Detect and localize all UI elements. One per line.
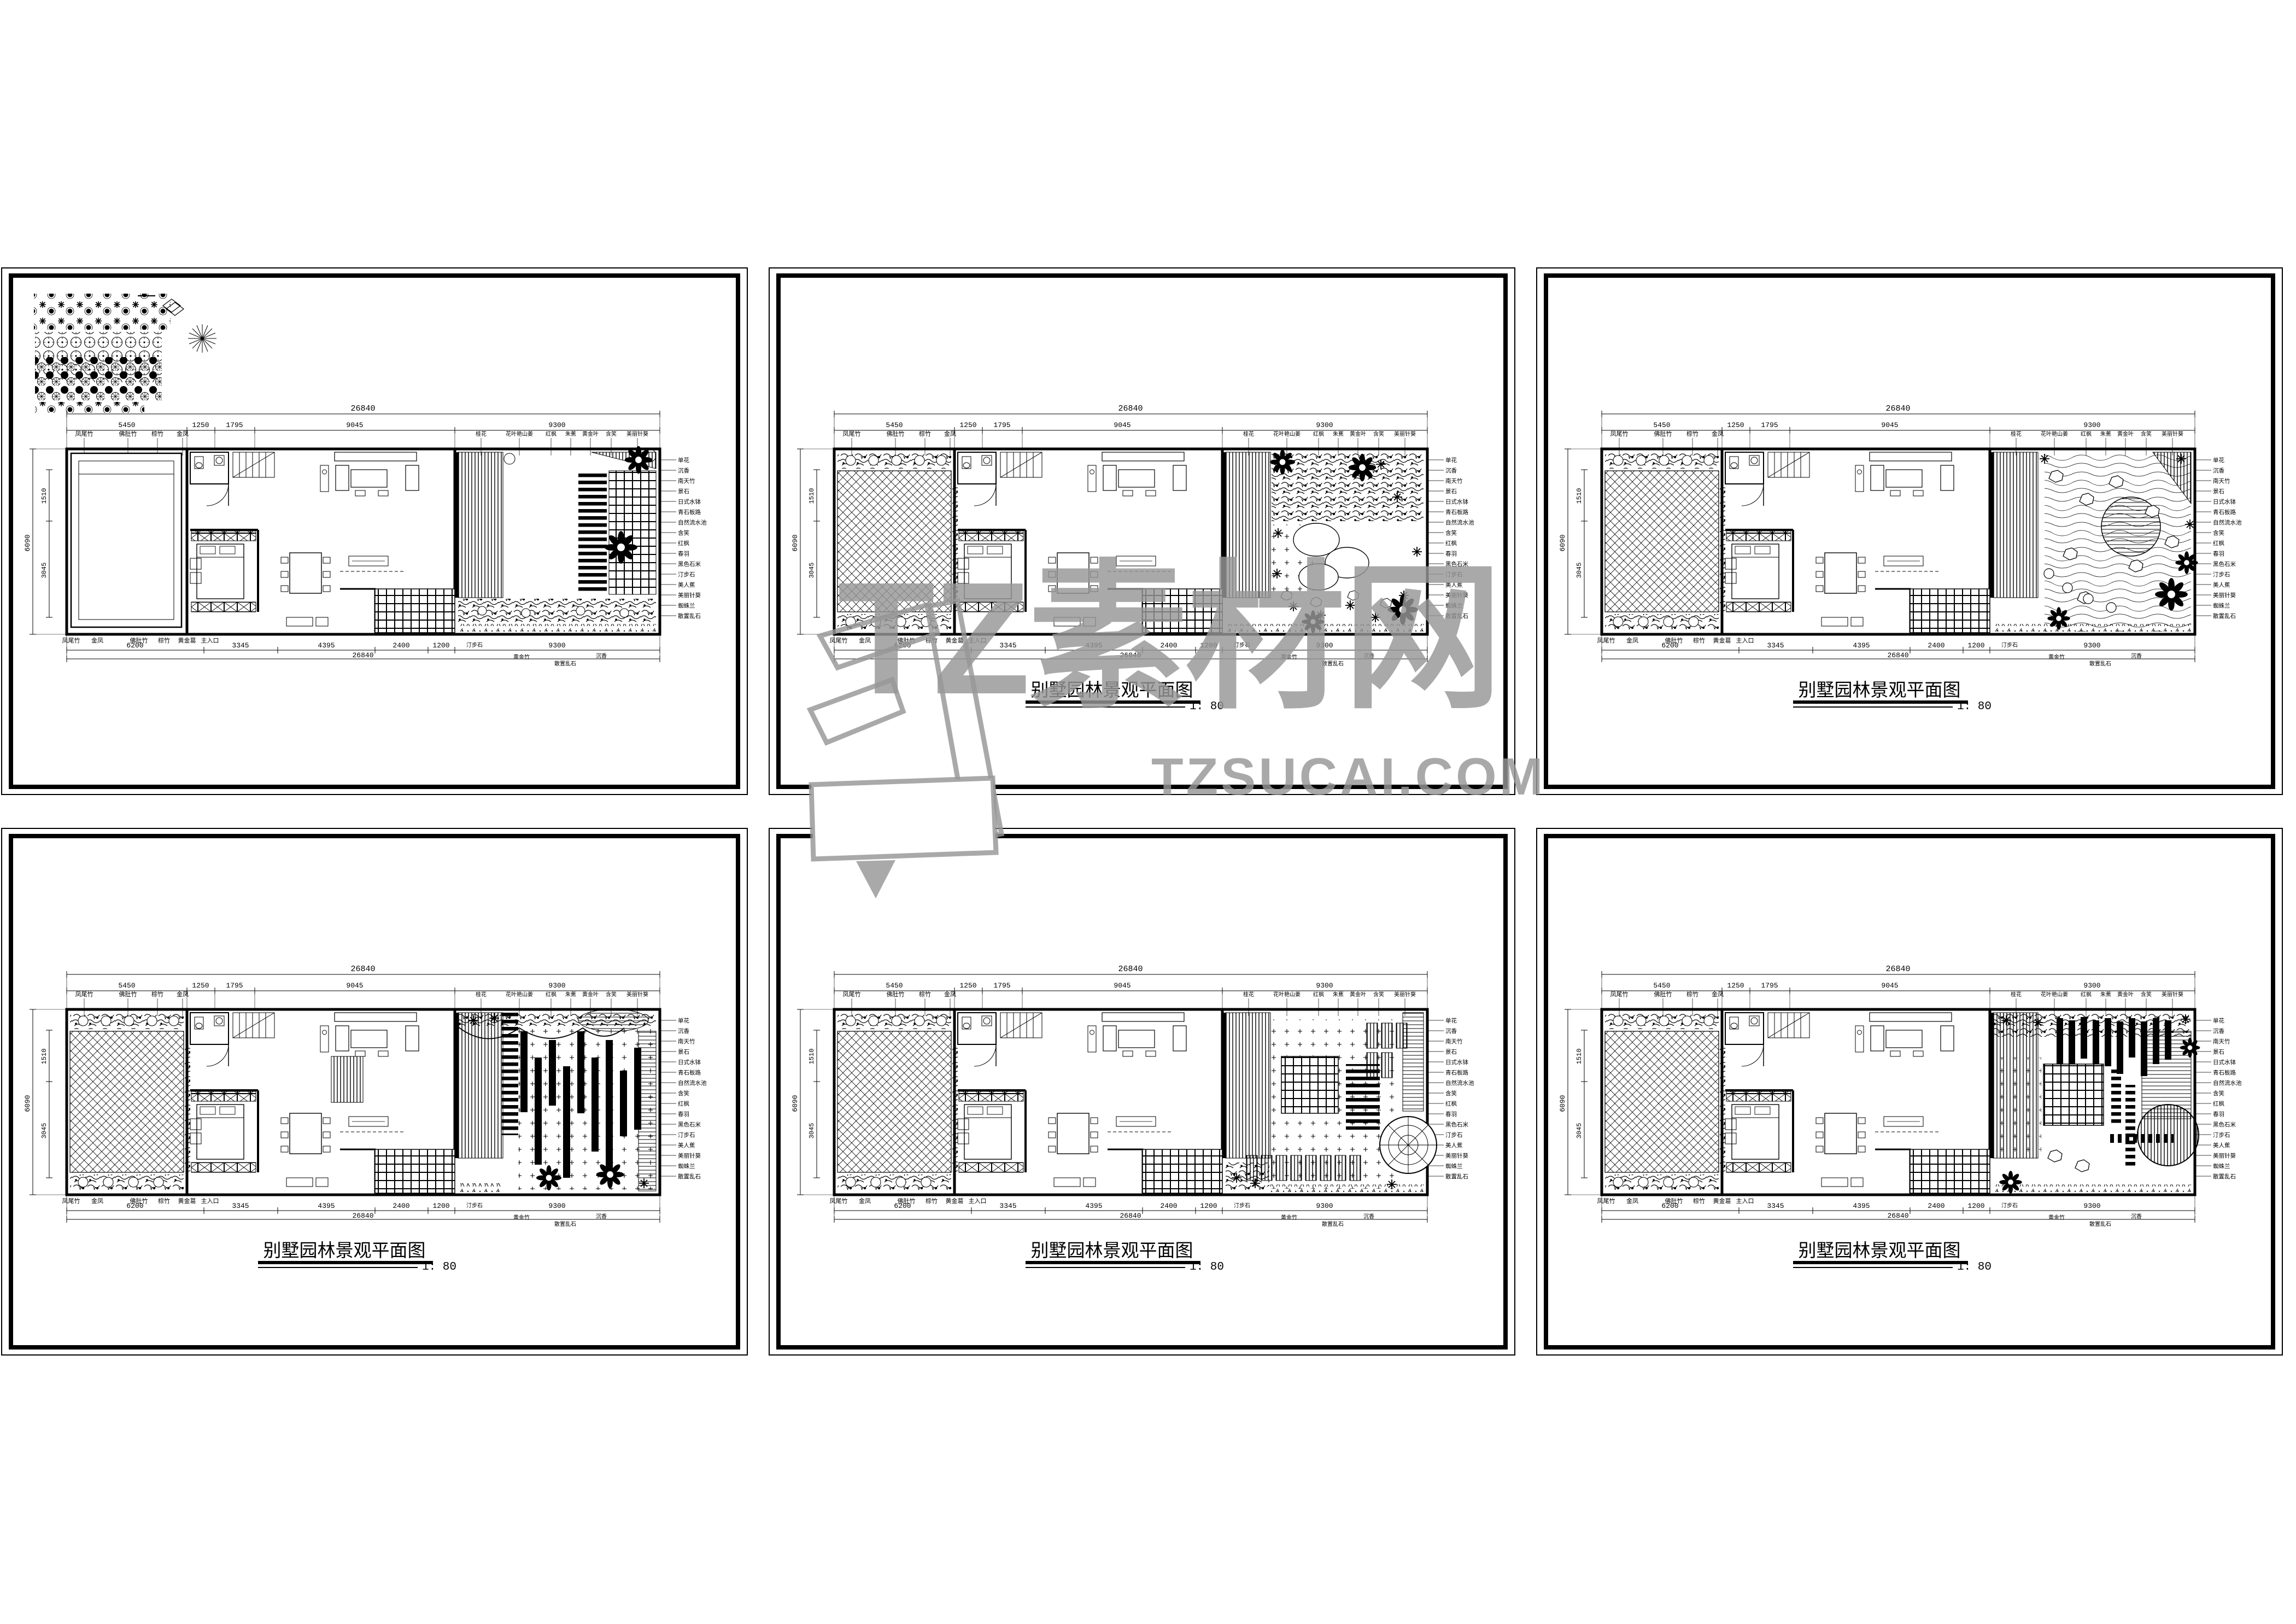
sheet-1 [1,267,748,795]
sheet-5 [769,828,1515,1356]
plan-svg-4 [1,828,748,1356]
sheet-3 [1536,267,2283,795]
plan-svg-5 [769,828,1515,1356]
sheet-2 [769,267,1515,795]
plan-svg-2 [769,267,1515,795]
plan-svg-6 [1536,828,2283,1356]
plan-svg-1 [1,267,748,795]
cad-sheet-montage: 26840 5450 1250 1795 9045 9300 6090 1510… [0,0,2296,1624]
sheet-6 [1536,828,2283,1356]
sheet-4 [1,828,748,1356]
plan-svg-3 [1536,267,2283,795]
